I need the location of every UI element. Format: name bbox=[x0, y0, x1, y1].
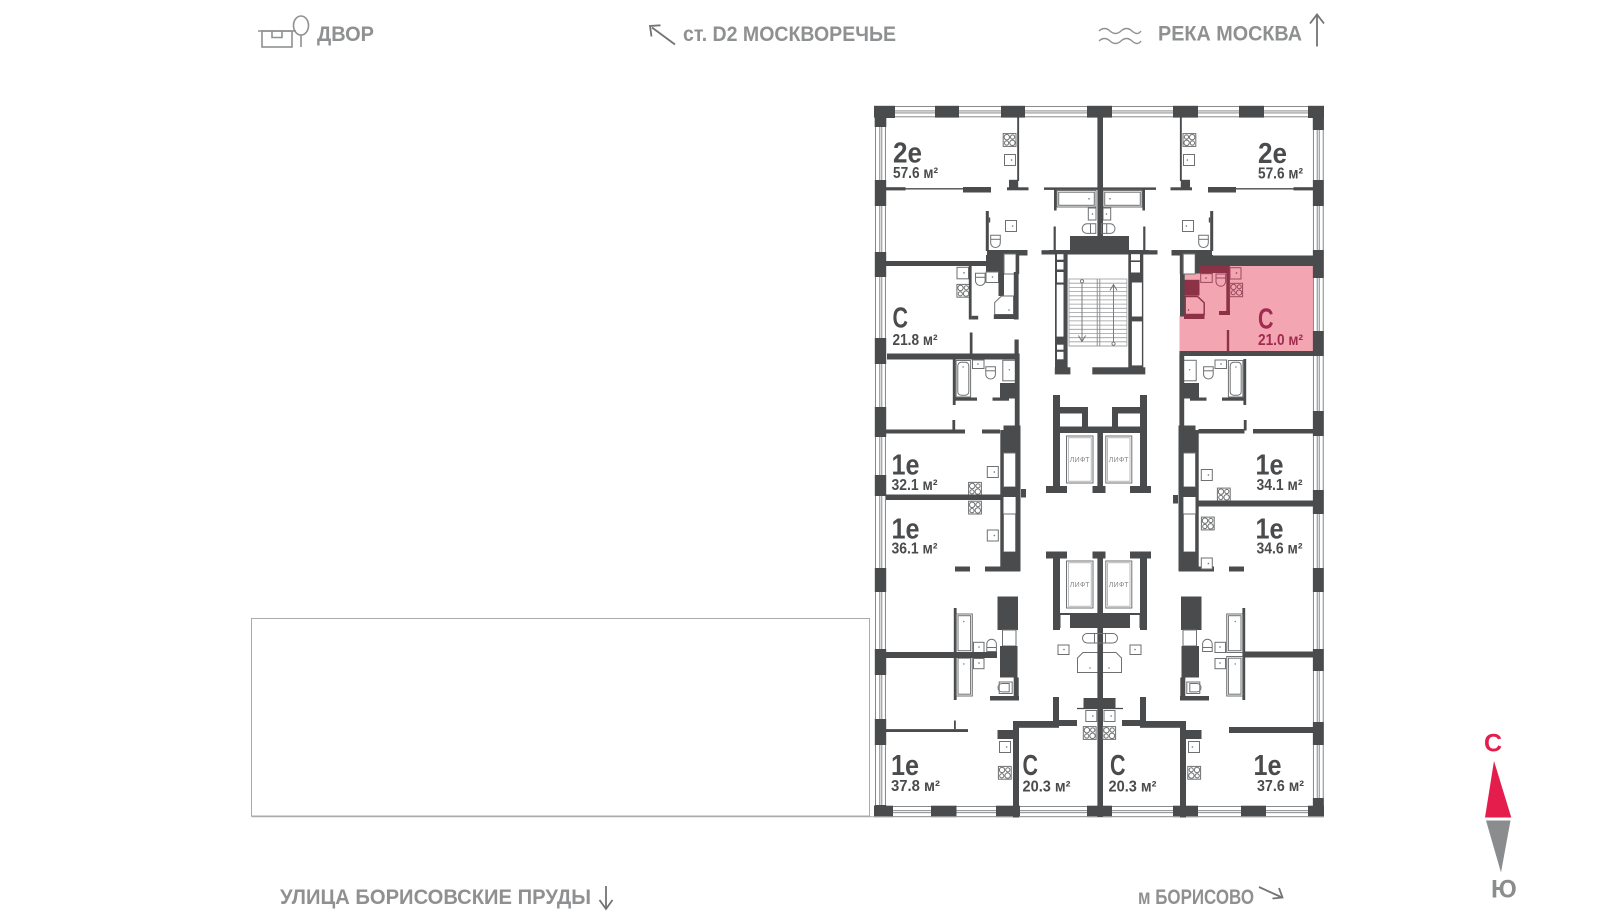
svg-text:36.1 м²: 36.1 м² bbox=[892, 541, 938, 558]
svg-text:РЕКА МОСКВА: РЕКА МОСКВА bbox=[1158, 23, 1302, 46]
svg-text:20.3 м²: 20.3 м² bbox=[1109, 779, 1157, 796]
svg-text:С: С bbox=[1110, 750, 1126, 782]
svg-text:34.1 м²: 34.1 м² bbox=[1257, 477, 1303, 494]
svg-text:37.6 м²: 37.6 м² bbox=[1257, 778, 1304, 795]
svg-text:С: С bbox=[893, 303, 909, 335]
svg-text:ЛИФТ: ЛИФТ bbox=[1109, 582, 1129, 589]
svg-text:С: С bbox=[1023, 750, 1039, 782]
svg-text:37.8 м²: 37.8 м² bbox=[891, 778, 940, 795]
svg-text:34.6 м²: 34.6 м² bbox=[1257, 541, 1303, 558]
svg-text:ЛИФТ: ЛИФТ bbox=[1070, 582, 1090, 589]
svg-text:21.8 м²: 21.8 м² bbox=[893, 332, 938, 349]
svg-text:21.0 м²: 21.0 м² bbox=[1258, 332, 1303, 349]
svg-text:УЛИЦА БОРИСОВСКИЕ ПРУДЫ: УЛИЦА БОРИСОВСКИЕ ПРУДЫ bbox=[280, 886, 591, 909]
svg-text:57.6 м²: 57.6 м² bbox=[1258, 166, 1303, 183]
svg-text:Ю: Ю bbox=[1491, 876, 1517, 904]
svg-text:ЛИФТ: ЛИФТ bbox=[1070, 457, 1090, 464]
svg-text:ДВОР: ДВОР bbox=[317, 23, 374, 46]
svg-text:ст. D2 МОСКВОРЕЧЬЕ: ст. D2 МОСКВОРЕЧЬЕ bbox=[683, 23, 896, 46]
svg-text:32.1 м²: 32.1 м² bbox=[892, 477, 938, 494]
svg-text:С: С bbox=[1258, 304, 1274, 336]
svg-text:20.3 м²: 20.3 м² bbox=[1023, 779, 1071, 796]
svg-text:57.6 м²: 57.6 м² bbox=[893, 165, 938, 182]
svg-text:м БОРИСОВО: м БОРИСОВО bbox=[1138, 886, 1254, 909]
svg-text:С: С bbox=[1484, 730, 1502, 758]
svg-text:ЛИФТ: ЛИФТ bbox=[1109, 457, 1129, 464]
